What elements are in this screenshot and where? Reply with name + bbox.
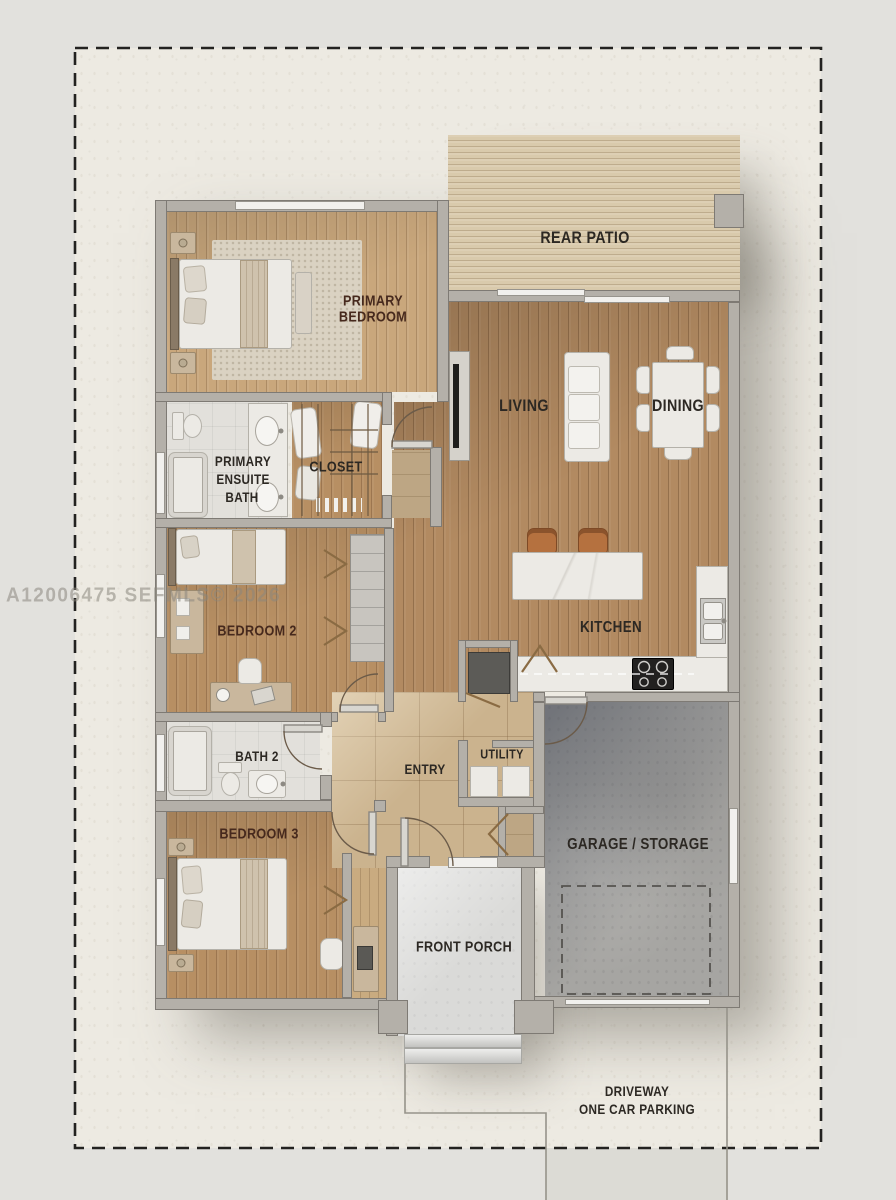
nightstand xyxy=(170,232,196,254)
cooktop xyxy=(632,658,674,690)
driveway-apron xyxy=(546,1148,727,1200)
wall xyxy=(521,856,535,1006)
label-rear-patio: REAR PATIO xyxy=(540,228,629,248)
bathtub xyxy=(168,452,208,518)
pillow xyxy=(181,865,203,895)
garage-door-slot xyxy=(565,999,710,1005)
hanging-clothes xyxy=(349,400,382,449)
label-primary-bedroom-1: PRIMARY xyxy=(343,293,403,310)
label-closet: CLOSET xyxy=(309,459,362,476)
label-ensuite-1: PRIMARY xyxy=(215,453,271,469)
wall xyxy=(155,712,338,722)
desk2-clock xyxy=(216,688,230,702)
wall xyxy=(458,640,518,648)
nightstand xyxy=(168,838,194,856)
wall xyxy=(320,712,332,727)
window xyxy=(729,808,738,884)
label-living: LIVING xyxy=(499,396,549,416)
bathtub2 xyxy=(168,726,212,796)
bed2-headboard xyxy=(168,528,176,586)
bed2-throw-blanket xyxy=(232,530,256,584)
wall xyxy=(320,775,332,800)
dining-chair xyxy=(664,446,692,460)
mls-watermark: A12006475 SEFMLS© 2026 xyxy=(6,584,281,607)
label-driveway-2: ONE CAR PARKING xyxy=(579,1101,695,1117)
wall xyxy=(437,200,449,402)
bedroom2-closet xyxy=(350,534,386,662)
sliding-glass-door xyxy=(584,296,670,303)
shoe-rack-items xyxy=(316,498,362,512)
wall xyxy=(378,712,386,722)
dining-chair xyxy=(706,366,720,394)
wall xyxy=(498,806,506,860)
kitchen-sink-basin xyxy=(703,602,723,620)
dining-chair xyxy=(706,404,720,432)
patio-wall-stub xyxy=(714,194,744,228)
foot-bench xyxy=(295,272,312,334)
bed-throw-blanket xyxy=(240,260,268,348)
dining-chair xyxy=(666,346,694,360)
label-ensuite-3: BATH xyxy=(225,489,258,505)
kitchen-island xyxy=(512,552,643,600)
wall xyxy=(374,800,386,812)
floor-plan-scene: REAR PATIO PRIMARY BEDROOM LIVING DINING… xyxy=(0,0,896,1200)
wall xyxy=(384,528,394,712)
pillow xyxy=(180,535,201,559)
desk2-chair xyxy=(238,658,262,684)
window xyxy=(156,734,165,792)
wall xyxy=(510,640,518,702)
wall xyxy=(382,392,392,425)
wall xyxy=(458,640,466,702)
bed3-throw-blanket xyxy=(240,859,268,949)
wall xyxy=(514,1000,554,1034)
wall xyxy=(155,392,392,402)
coat-closet-floor xyxy=(506,814,533,856)
label-driveway-1: DRIVEWAY xyxy=(605,1083,669,1099)
sofa-cushion xyxy=(568,394,600,421)
water-heater xyxy=(468,652,510,694)
dryer xyxy=(502,766,530,797)
bed-headboard xyxy=(170,258,179,350)
label-bedroom2: BEDROOM 2 xyxy=(217,623,296,640)
wall xyxy=(533,692,545,702)
nightstand xyxy=(168,954,194,972)
vestibule-tile xyxy=(392,450,432,518)
nightstand xyxy=(170,352,196,374)
wall xyxy=(585,692,740,702)
wall xyxy=(386,856,430,868)
wall xyxy=(342,853,352,998)
wall xyxy=(533,702,545,868)
bed3-headboard xyxy=(168,857,177,951)
tv xyxy=(453,364,459,448)
label-garage: GARAGE / STORAGE xyxy=(567,836,709,854)
dining-chair xyxy=(636,404,650,432)
rear-patio-deck xyxy=(448,135,740,292)
window xyxy=(156,452,165,514)
window xyxy=(156,878,165,946)
label-entry: ENTRY xyxy=(404,761,445,777)
sofa-cushion xyxy=(568,366,600,393)
wall xyxy=(430,447,442,527)
wall xyxy=(378,1000,408,1034)
sink xyxy=(256,774,278,794)
dresser-decor xyxy=(176,626,190,640)
dining-chair xyxy=(636,366,650,394)
pillow xyxy=(181,899,204,929)
toilet2-bowl xyxy=(221,772,240,796)
label-primary-bedroom-2: BEDROOM xyxy=(339,309,407,326)
porch-step-2 xyxy=(404,1048,522,1064)
kitchen-counter-bottom xyxy=(515,656,728,692)
label-front-porch: FRONT PORCH xyxy=(416,939,512,956)
sink xyxy=(255,416,279,446)
desk3-chair xyxy=(320,938,344,970)
sliding-glass-door xyxy=(497,289,585,296)
label-dining: DINING xyxy=(652,396,704,416)
sofa-cushion xyxy=(568,422,600,449)
desk3-laptop xyxy=(357,946,373,970)
front-door-threshold xyxy=(448,857,498,868)
label-bedroom3: BEDROOM 3 xyxy=(219,826,298,843)
kitchen-sink-basin xyxy=(703,623,723,640)
toilet-bowl xyxy=(183,414,202,438)
label-ensuite-2: ENSUITE xyxy=(216,471,269,487)
pillow xyxy=(183,265,208,293)
porch-step-1 xyxy=(404,1034,522,1048)
window xyxy=(235,201,365,210)
label-utility: UTILITY xyxy=(480,747,524,762)
wall xyxy=(728,302,740,1008)
wall xyxy=(155,518,392,528)
wall xyxy=(155,800,332,812)
wall xyxy=(155,998,390,1010)
label-bath2: BATH 2 xyxy=(235,748,279,764)
pillow xyxy=(183,297,207,325)
washer xyxy=(470,766,498,797)
label-kitchen: KITCHEN xyxy=(580,619,642,637)
